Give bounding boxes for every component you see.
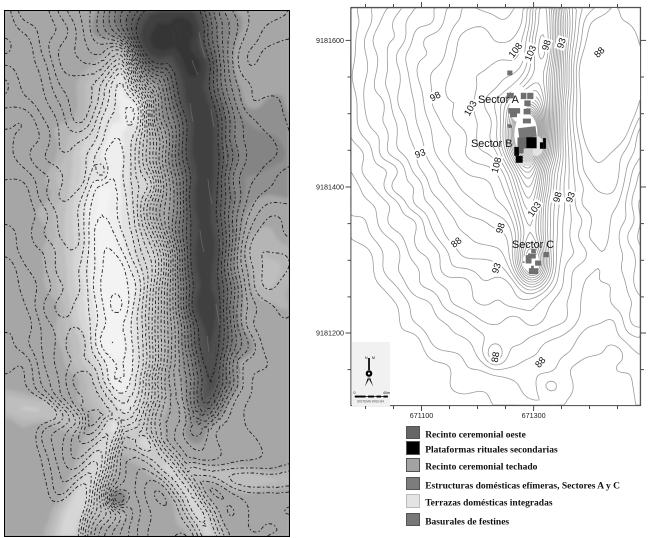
svg-text:40m: 40m [383,391,390,395]
svg-text:9181600: 9181600 [316,36,344,45]
svg-text:Sector B: Sector B [471,138,512,150]
svg-text:98: 98 [428,90,443,105]
svg-text:Sector C: Sector C [512,239,554,251]
svg-text:Sector A: Sector A [478,94,520,106]
svg-text:M: M [372,356,375,360]
svg-text:0: 0 [354,391,356,395]
svg-text:88: 88 [490,351,503,363]
svg-text:88: 88 [449,235,464,250]
svg-text:671300: 671300 [522,411,546,420]
svg-text:SISTEMA WGS-84: SISTEMA WGS-84 [357,400,384,404]
svg-text:88: 88 [533,355,548,370]
svg-text:88: 88 [592,45,607,60]
svg-text:9181400: 9181400 [316,183,344,192]
svg-text:671100: 671100 [410,411,433,420]
svg-text:9181200: 9181200 [316,329,344,338]
